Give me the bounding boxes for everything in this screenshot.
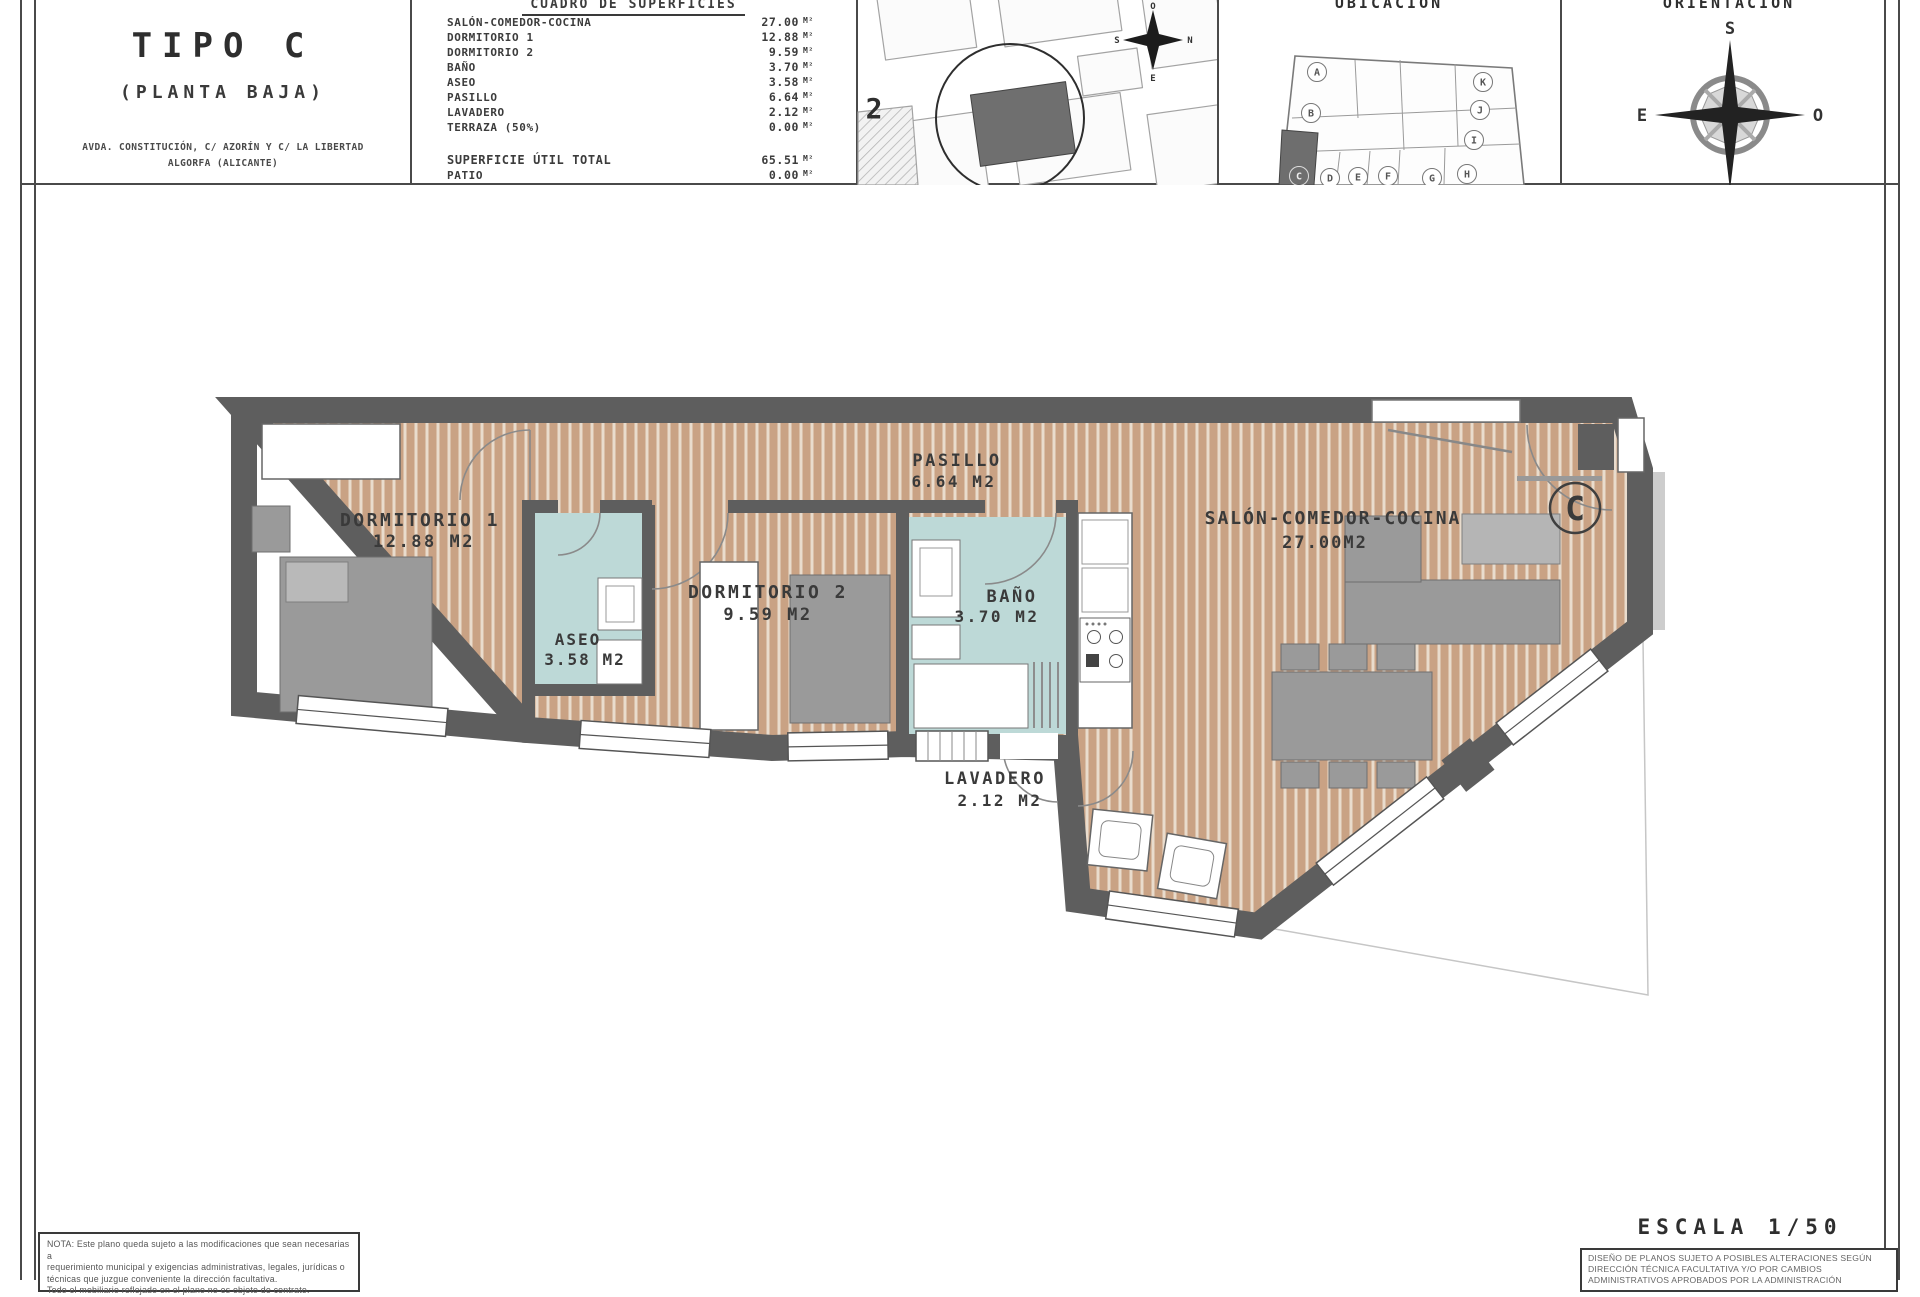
surface-table-title: CUADRO DE SUPERFICIES — [412, 0, 855, 16]
room-area-bano: 3.70 M2 — [955, 607, 1040, 626]
orientacion-panel: ORIENTACIÓN S N E O — [1560, 0, 1898, 185]
ubicacion-plan: A B C D E F G H I J K — [1218, 0, 1560, 185]
table-row: LAVADERO2.12M² — [447, 105, 825, 120]
dorm1-wardrobe — [262, 424, 400, 479]
table-row: PATIO0.00M² — [447, 168, 825, 183]
ubicacion-title: UBICACIÓN — [1218, 0, 1560, 12]
site-map: 2 O S N E — [857, 0, 1217, 185]
plan-floor-label: (PLANTA BAJA) — [36, 82, 410, 103]
svg-text:C: C — [1296, 172, 1302, 183]
room-area-dormitorio-1: 12.88 M2 — [373, 532, 475, 552]
svg-text:N: N — [1187, 36, 1192, 46]
dining-table — [1272, 672, 1432, 760]
svg-text:O: O — [1813, 106, 1823, 126]
room-label-bano: BAÑO — [987, 584, 1038, 607]
dining-set — [1272, 644, 1432, 788]
bano-toilet — [912, 540, 960, 617]
nota-box: NOTA: Este plano queda sujeto a las modi… — [38, 1232, 360, 1292]
table-row: SALÓN-COMEDOR-COCINA27.00M² — [447, 15, 825, 30]
room-label-salon: SALÓN-COMEDOR-COCINA — [1205, 507, 1462, 529]
svg-text:S: S — [1114, 36, 1119, 46]
svg-text:B: B — [1308, 109, 1314, 120]
kitchen-stove — [1080, 618, 1130, 682]
lavadero-door-opening — [1000, 733, 1058, 759]
room-area-lavadero: 2.12 M2 — [958, 791, 1043, 810]
svg-text:E: E — [1355, 173, 1361, 184]
svg-text:E: E — [1637, 106, 1647, 126]
room-label-aseo: ASEO — [555, 630, 602, 649]
svg-text:K: K — [1480, 78, 1486, 89]
svg-text:J: J — [1477, 106, 1483, 117]
plot-number-label: 2 — [866, 92, 883, 125]
entrance-sidelight-window — [1618, 418, 1644, 472]
entrance-lintel — [1517, 476, 1602, 481]
table-row: PASILLO6.64M² — [447, 90, 825, 105]
svg-text:E: E — [1150, 74, 1155, 84]
highlighted-building — [970, 82, 1075, 167]
compass-rose-icon: S N E O — [1637, 19, 1823, 185]
svg-text:C: C — [1565, 489, 1585, 528]
svg-text:A: A — [1314, 68, 1320, 79]
scale-label: ESCALA 1/50 — [1580, 1215, 1900, 1239]
table-row: DORMITORIO 29.59M² — [447, 45, 825, 60]
louver-door — [916, 731, 988, 761]
bano-sink — [912, 625, 960, 659]
coffee-table — [1462, 514, 1560, 564]
room-label-lavadero: LAVADERO — [944, 769, 1046, 789]
orientacion-title: ORIENTACIÓN — [1560, 0, 1898, 12]
table-row: DORMITORIO 112.88M² — [447, 30, 825, 45]
salon-window — [1372, 400, 1520, 422]
room-label-dormitorio-1: DORMITORIO 1 — [340, 510, 500, 531]
surface-table-panel: CUADRO DE SUPERFICIES SALÓN-COMEDOR-COCI… — [412, 0, 855, 185]
svg-text:D: D — [1327, 174, 1333, 185]
room-area-aseo: 3.58 M2 — [544, 650, 625, 669]
floor-plan: DORMITORIO 1 12.88 M2 ASEO 3.58 M2 DORMI… — [20, 185, 1900, 1280]
plan-type-title: TIPO C — [36, 26, 410, 66]
dorm1-nightstand — [252, 506, 290, 552]
svg-text:S: S — [1725, 19, 1735, 39]
room-area-salon: 27.00M2 — [1282, 533, 1368, 553]
room-label-pasillo: PASILLO — [912, 451, 1001, 471]
table-row-total: SUPERFICIE ÚTIL TOTAL65.51M² — [447, 153, 825, 168]
title-panel: TIPO C (PLANTA BAJA) AVDA. CONSTITUCIÓN,… — [36, 0, 410, 185]
svg-text:F: F — [1385, 172, 1391, 183]
orientation-compass: S N E O — [1560, 0, 1898, 185]
address-line-2: ALGORFA (ALICANTE) — [36, 158, 410, 169]
room-label-dormitorio-2: DORMITORIO 2 — [688, 582, 848, 603]
terrace-wall — [1653, 472, 1665, 630]
address-line-1: AVDA. CONSTITUCIÓN, C/ AZORÍN Y C/ LA LI… — [36, 142, 410, 153]
svg-text:O: O — [1150, 2, 1156, 12]
svg-text:H: H — [1464, 170, 1470, 181]
sofa-main — [1345, 580, 1560, 644]
svg-text:G: G — [1429, 174, 1435, 185]
room-area-pasillo: 6.64 M2 — [912, 472, 997, 491]
bathtub — [914, 664, 1028, 728]
plan-sheet: TIPO C (PLANTA BAJA) AVDA. CONSTITUCIÓN,… — [0, 0, 1920, 1280]
ubicacion-panel: UBICACIÓN A B C D E F G — [1218, 0, 1560, 185]
dorm1-pillow — [286, 562, 348, 602]
table-row: BAÑO3.70M² — [447, 60, 825, 75]
surface-table: SALÓN-COMEDOR-COCINA27.00M² DORMITORIO 1… — [447, 15, 825, 185]
site-map-panel: 2 O S N E — [857, 0, 1217, 185]
table-row: ASEO3.58M² — [447, 75, 825, 90]
svg-text:I: I — [1471, 136, 1477, 147]
room-area-dormitorio-2: 9.59 M2 — [723, 605, 812, 625]
table-row: TERRAZA (50%)0.00M² — [447, 120, 825, 135]
disclaimer-box: DISEÑO DE PLANOS SUJETO A POSIBLES ALTER… — [1580, 1248, 1898, 1292]
